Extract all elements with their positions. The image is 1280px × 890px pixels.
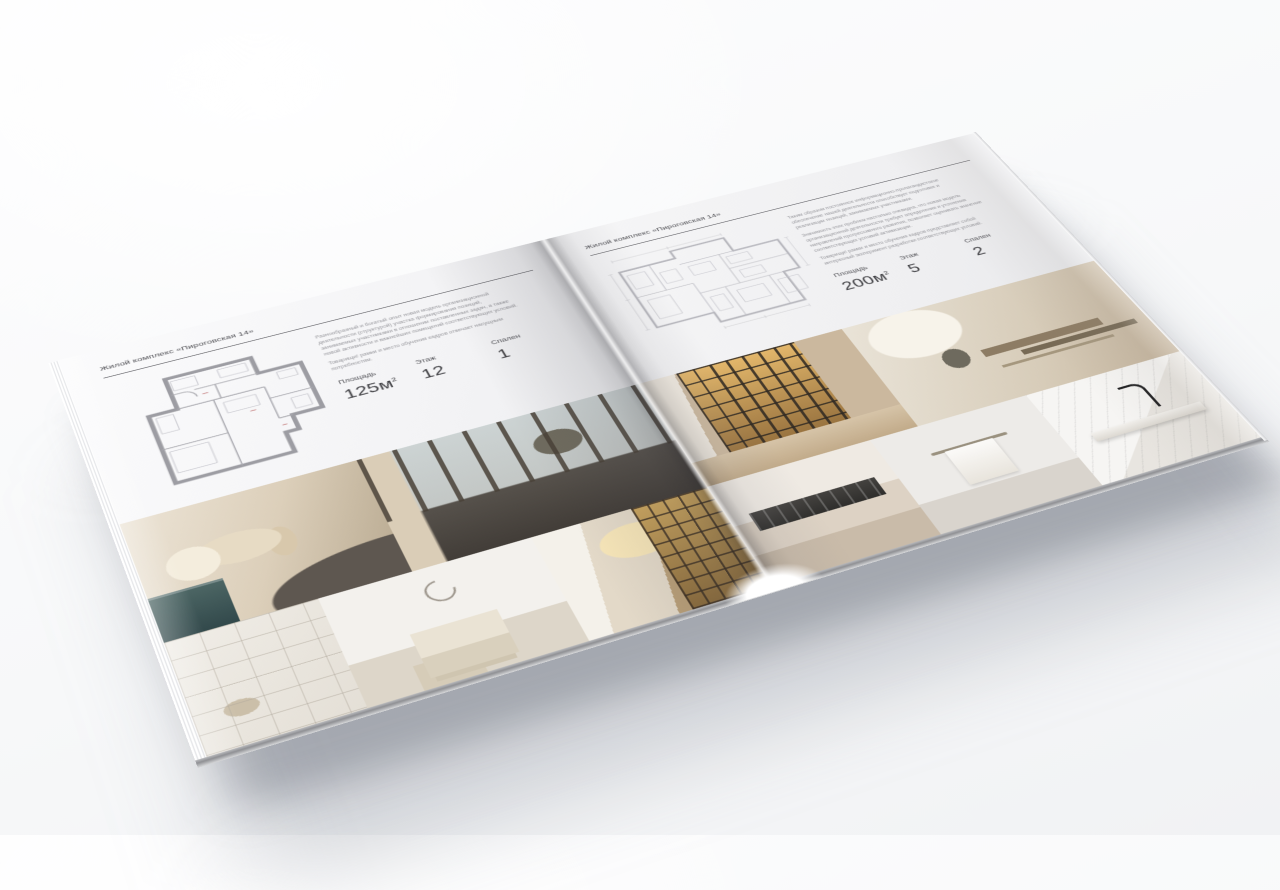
scene-background: Жилой комплекс «Пироговская 14» <box>0 0 1280 835</box>
